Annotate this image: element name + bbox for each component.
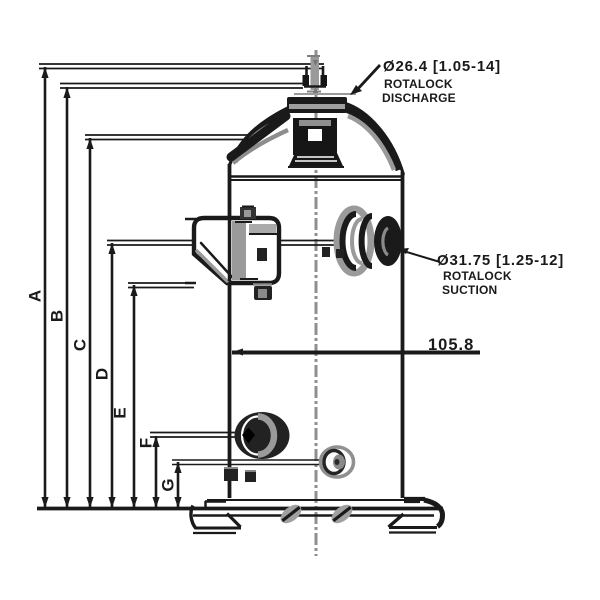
svg-text:E: E xyxy=(110,407,129,418)
svg-text:D: D xyxy=(92,368,111,380)
svg-text:105.8: 105.8 xyxy=(428,336,474,354)
svg-text:F: F xyxy=(136,438,155,448)
svg-text:C: C xyxy=(70,339,89,351)
svg-text:SUCTION: SUCTION xyxy=(442,283,497,297)
svg-text:ROTALOCK: ROTALOCK xyxy=(384,77,453,91)
svg-text:DISCHARGE: DISCHARGE xyxy=(382,91,456,105)
svg-text:B: B xyxy=(47,310,66,322)
svg-text:A: A xyxy=(25,290,44,302)
svg-text:Ø26.4 [1.05-14]: Ø26.4 [1.05-14] xyxy=(383,58,501,75)
svg-text:G: G xyxy=(158,478,177,491)
svg-text:ROTALOCK: ROTALOCK xyxy=(443,269,512,283)
svg-text:Ø31.75 [1.25-12]: Ø31.75 [1.25-12] xyxy=(437,252,564,269)
